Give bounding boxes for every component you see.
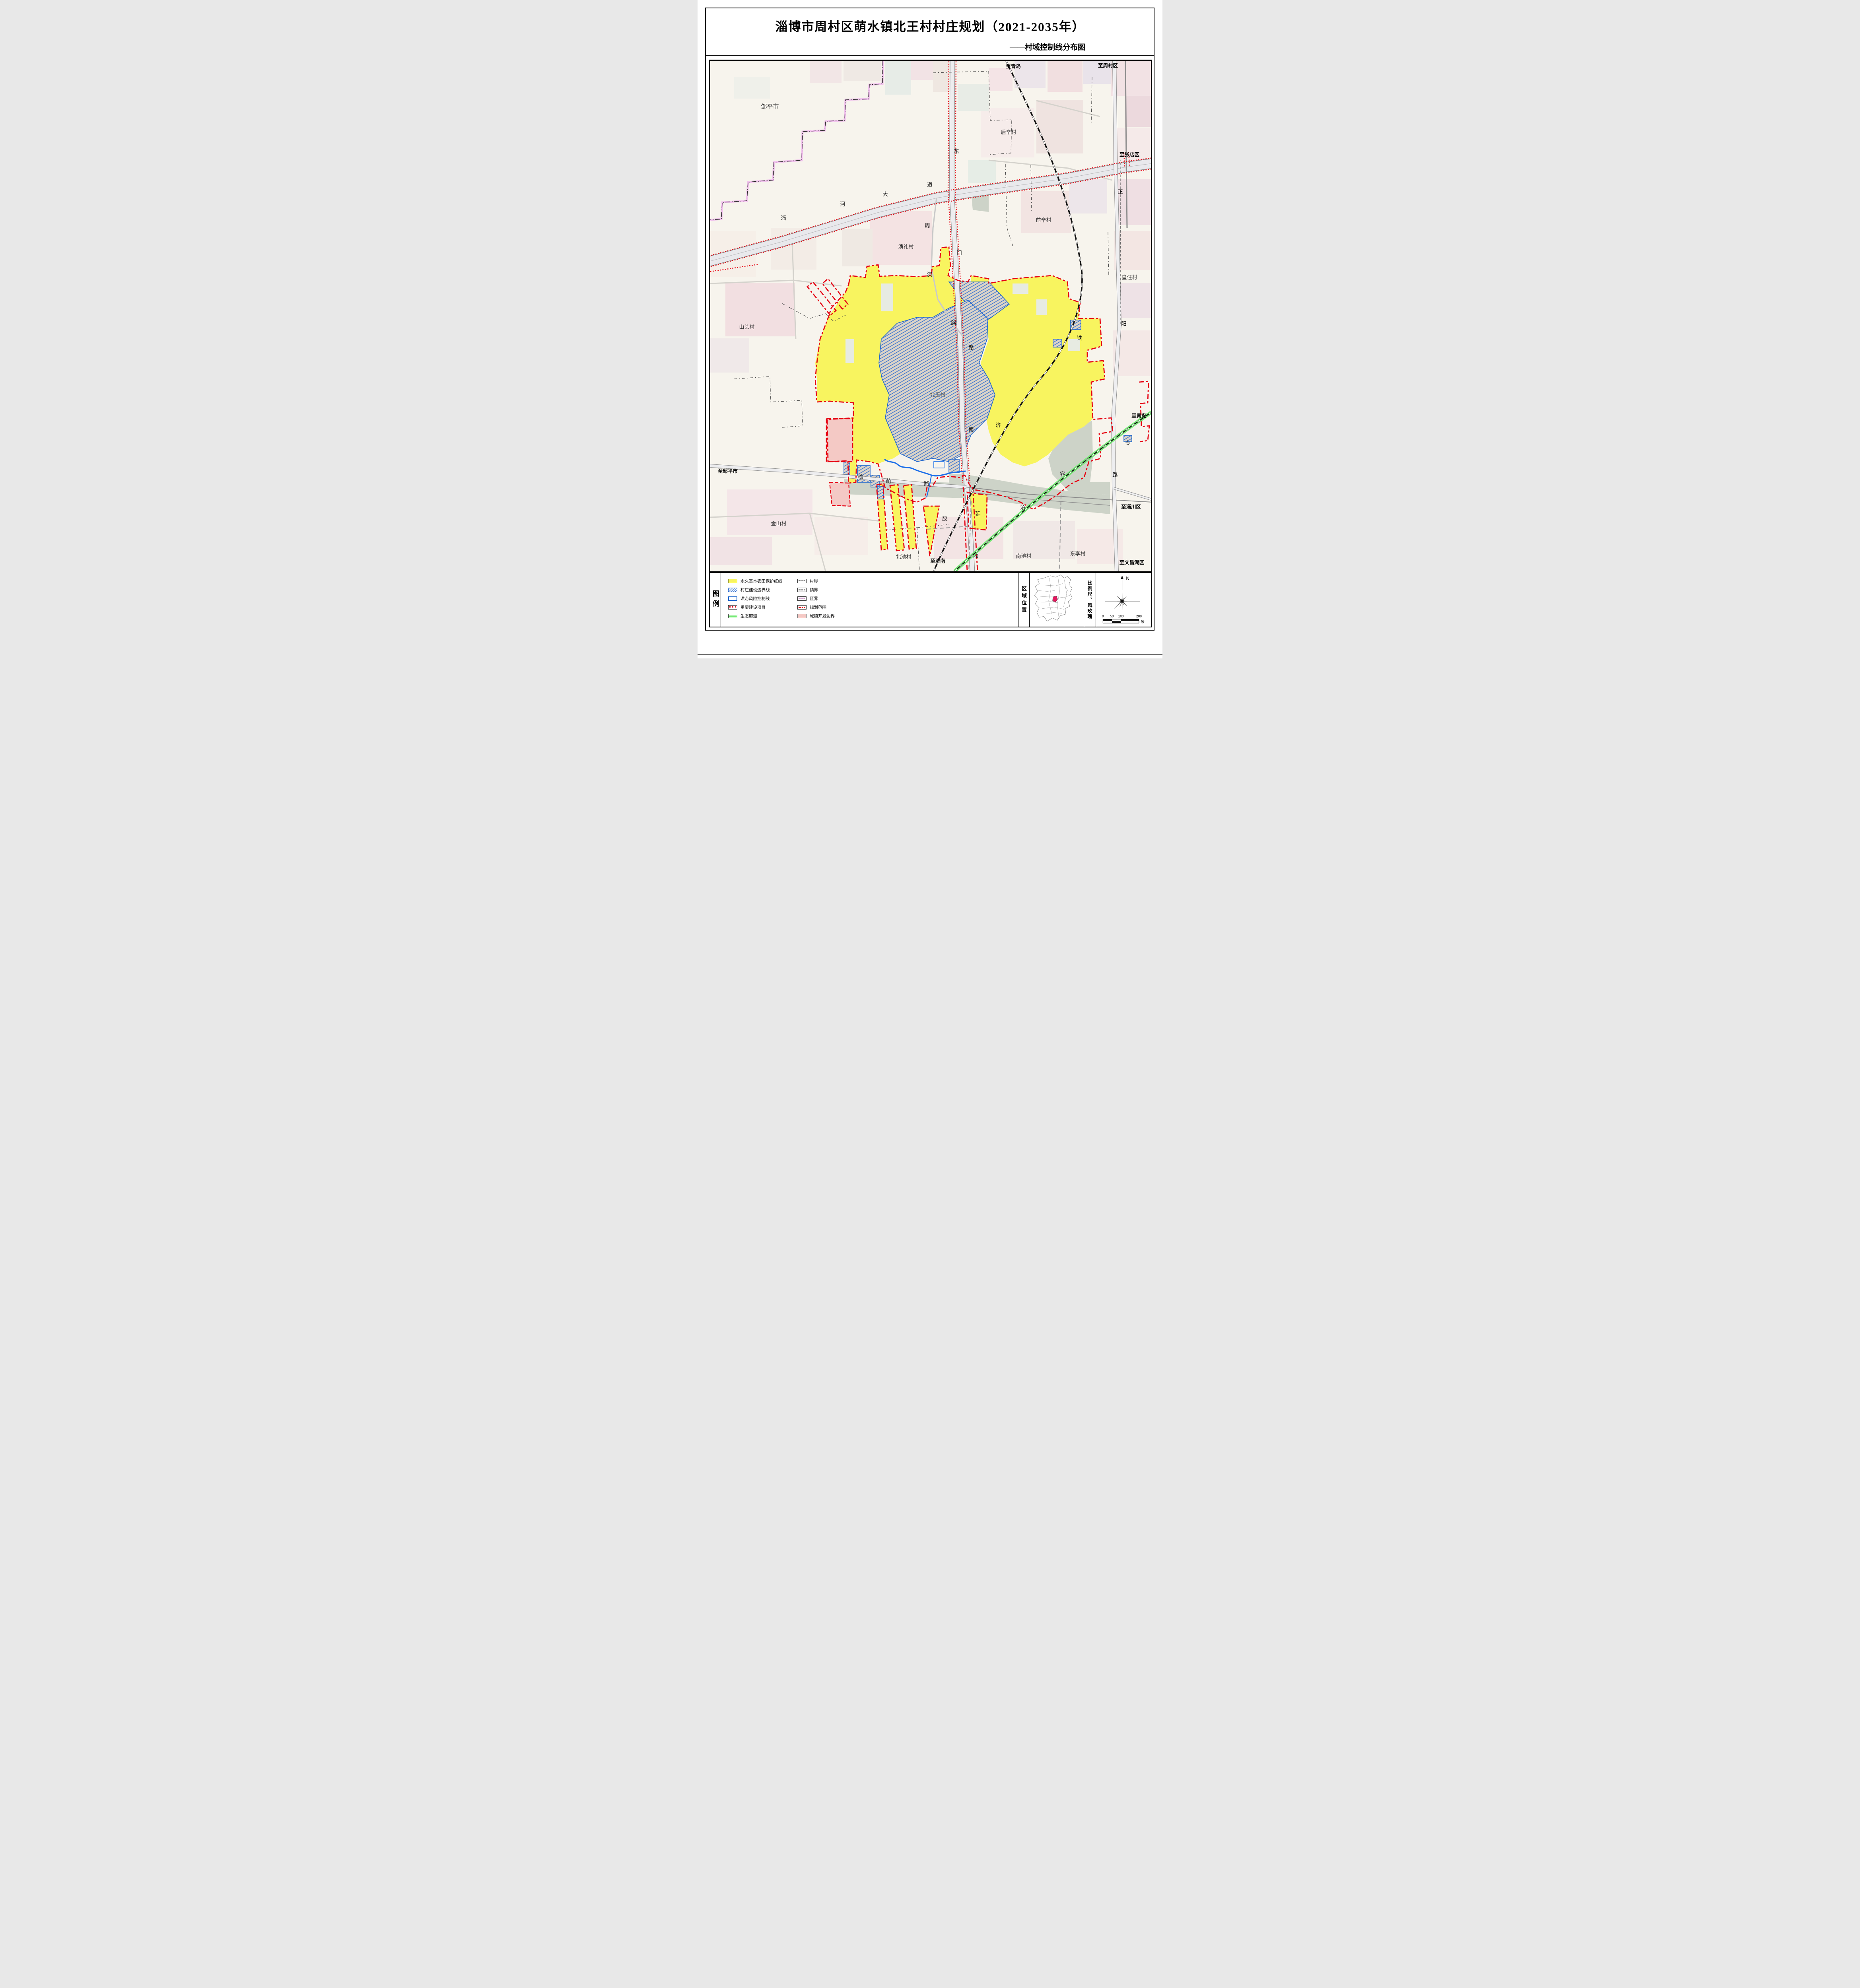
compass-scale-canvas: N 0 50 100 200 米	[1096, 573, 1151, 627]
map-label: 演	[927, 272, 932, 278]
legend-label: 规划范围	[810, 604, 826, 610]
map-label: 正	[1118, 189, 1123, 195]
map-canvas: 邹平市至青岛至周村区后辛村至张店区淄河大道东门路南延周演路演礼村前辛村皇住村山头…	[710, 61, 1151, 571]
scale-unit: 米	[1141, 619, 1145, 624]
legend-label: 区界	[810, 596, 818, 602]
map-label: 邹平市	[761, 103, 779, 110]
map-label: 北池村	[896, 554, 911, 560]
map-label: 路	[951, 320, 956, 326]
legend-item-planning-scope: 规划范围	[797, 605, 835, 610]
map-label: 南池村	[1016, 553, 1031, 559]
page-title: 淄博市周村区萌水镇北王村村庄规划（2021-2035年）	[733, 17, 1127, 35]
map-label: 路	[968, 345, 974, 351]
plan-sheet: 淄博市周村区萌水镇北王村村庄规划（2021-2035年） ——村域控制线分布图	[698, 0, 1162, 658]
legend-right-column: 村界 镇界 区界 规划范围 城镇开发边界	[797, 579, 835, 623]
legend-label: 村界	[810, 578, 818, 584]
legend-strip: 图例 永久基本农田保护红线 村庄建设边界线 洪涝风险控制线 重要建设项目	[709, 572, 1152, 627]
map-label: 道	[927, 182, 933, 188]
region-inset-map	[1030, 573, 1084, 627]
map-label: 皇住村	[1121, 274, 1137, 280]
legend-label: 洪涝风险控制线	[741, 596, 770, 602]
map-label: 路	[924, 481, 929, 487]
map-label: 大	[882, 191, 888, 197]
map-label: 至周村区	[1098, 62, 1118, 68]
legend-label: 生态廊道	[741, 613, 757, 619]
map-label: 后辛村	[1001, 129, 1016, 135]
district-boundary-swatch	[797, 596, 807, 601]
map-label: 至济南	[930, 558, 945, 564]
legend-label: 永久基本农田保护红线	[741, 578, 782, 584]
map-label: 至文昌湖区	[1119, 559, 1145, 565]
scale-tick-50: 50	[1110, 614, 1114, 618]
legend-item-flood: 洪涝风险控制线	[728, 596, 782, 601]
scale-tick-200: 200	[1136, 614, 1142, 618]
legend-item-construction: 村庄建设边界线	[728, 587, 782, 592]
town-boundary-swatch	[797, 588, 807, 592]
map-label: 东李村	[1070, 551, 1085, 557]
map-label: 阳	[1121, 321, 1127, 327]
map-label: 专	[1125, 440, 1131, 446]
legend-item-town-boundary: 镇界	[797, 587, 835, 592]
map-label: 前辛村	[1036, 217, 1051, 223]
map-label: 济	[1020, 505, 1026, 511]
bottom-rule	[698, 654, 1162, 655]
map-label: 淄	[781, 215, 786, 221]
legend-item-project: 重要建设项目	[728, 605, 782, 610]
map-label: 济	[995, 422, 1001, 428]
map-label: 门	[956, 250, 962, 256]
map-frame: 邹平市至青岛至周村区后辛村至张店区淄河大道东门路南延周演路演礼村前辛村皇住村山头…	[709, 60, 1152, 573]
legend-item-village-boundary: 村界	[797, 579, 835, 583]
farmland-swatch	[728, 579, 737, 583]
legend-label: 镇界	[810, 587, 818, 593]
map-label: 胶	[942, 515, 948, 522]
page-subtitle: ——村域控制线分布图	[1010, 41, 1085, 52]
legend-title: 图例	[710, 590, 720, 610]
project-swatch	[728, 605, 737, 610]
map-label: 河	[840, 201, 845, 207]
scale-bar: 0 50 100 200 米	[1102, 614, 1145, 624]
map-label: 至青岛	[1131, 413, 1147, 419]
map-label: 路	[1112, 472, 1118, 478]
compass-scale-panel: N 0 50 100 200 米	[1096, 573, 1151, 627]
map-label: 萌	[886, 478, 891, 484]
legend-item-eco: 生态廊道	[728, 613, 782, 618]
village-boundary-swatch	[797, 579, 807, 583]
legend-title-panel: 图例	[710, 573, 721, 627]
scale-tick-0: 0	[1102, 614, 1104, 618]
windrose	[1115, 586, 1127, 617]
map-label: 胶	[973, 553, 979, 559]
scale-windrose-panel-title: 比例尺、风玫瑰	[1084, 573, 1096, 627]
north-label: N	[1126, 576, 1129, 581]
legend-item-farmland: 永久基本农田保护红线	[728, 579, 782, 583]
map-label: 东	[954, 148, 959, 154]
legend-label: 村庄建设边界线	[741, 587, 770, 593]
map-label: 杨	[858, 474, 863, 480]
map-label: 北王村	[930, 392, 945, 398]
legend-items: 永久基本农田保护红线 村庄建设边界线 洪涝风险控制线 重要建设项目 生态廊道	[721, 573, 1018, 627]
legend-label: 重要建设项目	[741, 604, 766, 610]
map-label: 南	[968, 427, 974, 433]
urban-dev-swatch	[797, 614, 807, 618]
map-label: 金山村	[771, 520, 786, 526]
map-label: 至青岛	[1006, 63, 1021, 69]
legend-item-district-boundary: 区界	[797, 596, 835, 601]
map-label: 延	[975, 511, 981, 517]
map-label: 山头村	[739, 324, 754, 330]
planning-scope-swatch	[797, 605, 807, 610]
region-location-title: 区域位置	[1020, 586, 1028, 614]
construction-swatch	[728, 588, 737, 592]
map-label: 客	[1060, 471, 1065, 477]
map-label: 至淄川区	[1121, 504, 1141, 510]
eco-swatch	[728, 614, 737, 618]
map-label: 演礼村	[898, 244, 913, 250]
legend-label: 城镇开发边界	[810, 613, 835, 619]
map-label: 至张店区	[1119, 151, 1140, 157]
scale-tick-100: 100	[1118, 614, 1124, 618]
legend-item-urban-dev: 城镇开发边界	[797, 613, 835, 618]
scale-windrose-title: 比例尺、风玫瑰	[1086, 580, 1093, 619]
legend-left-column: 永久基本农田保护红线 村庄建设边界线 洪涝风险控制线 重要建设项目 生态廊道	[728, 579, 782, 623]
inset-map-canvas	[1030, 573, 1084, 627]
region-location-panel-title: 区域位置	[1018, 573, 1030, 627]
flood-swatch	[728, 596, 737, 601]
map-label: 铁	[1077, 335, 1082, 341]
title-divider	[705, 55, 1154, 57]
map-label: 至邹平市	[718, 468, 738, 474]
map-label: 周	[925, 223, 930, 229]
